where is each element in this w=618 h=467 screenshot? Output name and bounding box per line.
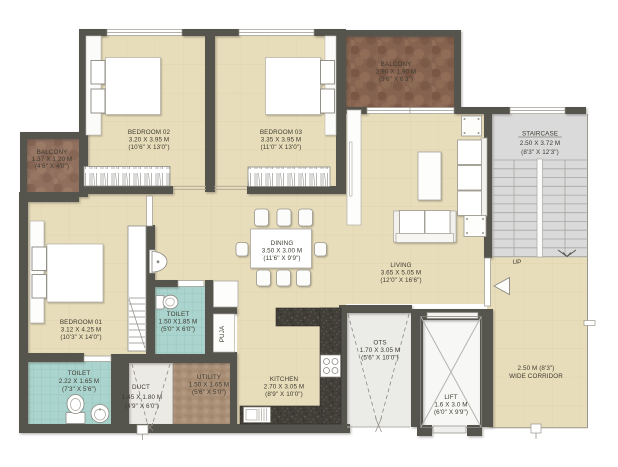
svg-text:(10'6" X 13'0"): (10'6" X 13'0"): [128, 144, 169, 151]
svg-text:2.50 X 3.72 M: 2.50 X 3.72 M: [520, 140, 561, 147]
svg-text:BALCONY: BALCONY: [37, 149, 68, 156]
svg-text:(6'0" X 9'9"): (6'0" X 9'9"): [434, 409, 468, 416]
svg-text:(11'6" X 9'9"): (11'6" X 9'9"): [263, 255, 300, 262]
svg-text:LIVING: LIVING: [390, 262, 411, 269]
svg-text:(11'0" X 13'0"): (11'0" X 13'0"): [261, 144, 302, 151]
svg-text:1.6 X 3.0 M: 1.6 X 3.0 M: [434, 402, 467, 409]
svg-text:1.45 X 1.80 M: 1.45 X 1.80 M: [122, 394, 163, 401]
svg-text:(5'6" X 5'0"): (5'6" X 5'0"): [192, 389, 226, 396]
svg-text:(4'6" X 4'0"): (4'6" X 4'0"): [35, 163, 69, 170]
svg-text:1.70 X 3.05 M: 1.70 X 3.05 M: [360, 347, 401, 354]
svg-text:TOILET: TOILET: [68, 370, 91, 377]
svg-text:1.50 X1.85 M: 1.50 X1.85 M: [159, 319, 198, 326]
svg-text:DUCT: DUCT: [132, 384, 150, 391]
svg-text:3.20 X 3.95 M: 3.20 X 3.95 M: [129, 137, 170, 144]
svg-text:LIFT: LIFT: [444, 394, 457, 401]
svg-text:3.35 X 3.95 M: 3.35 X 3.95 M: [261, 137, 302, 144]
svg-text:KITCHEN: KITCHEN: [270, 376, 299, 383]
svg-text:2.50 M (8'3"): 2.50 M (8'3"): [518, 365, 555, 372]
svg-text:OTS: OTS: [373, 340, 386, 347]
svg-text:3.50 X 3.00 M: 3.50 X 3.00 M: [262, 248, 303, 255]
svg-text:UP: UP: [513, 259, 522, 266]
svg-text:STAIRCASE: STAIRCASE: [522, 131, 558, 138]
svg-text:(10'3" X 14'0"): (10'3" X 14'0"): [60, 334, 101, 341]
svg-text:2.70 X 3.05 M: 2.70 X 3.05 M: [264, 384, 305, 391]
svg-text:UTILITY: UTILITY: [197, 374, 222, 381]
svg-text:BEDROOM 03: BEDROOM 03: [260, 129, 303, 136]
svg-text:TOILET: TOILET: [167, 311, 190, 318]
svg-text:WIDE CORRIDOR: WIDE CORRIDOR: [509, 373, 563, 380]
svg-text:(9'6" X 6'3"): (9'6" X 6'3"): [379, 76, 413, 83]
svg-text:2.90 X 1.90 M: 2.90 X 1.90 M: [376, 69, 417, 76]
svg-text:BEDROOM 02: BEDROOM 02: [128, 129, 171, 136]
svg-text:(4'9" X 6'0"): (4'9" X 6'0"): [125, 403, 159, 410]
svg-text:(8'9" X 10'0"): (8'9" X 10'0"): [265, 391, 303, 398]
svg-text:(8'3" X 12'3"): (8'3" X 12'3"): [521, 149, 559, 156]
svg-text:(5'0" X 6'0"): (5'0" X 6'0"): [161, 326, 195, 333]
svg-text:3.12 X 4.25 M: 3.12 X 4.25 M: [61, 327, 102, 334]
svg-text:2.22 X 1.65 M: 2.22 X 1.65 M: [59, 378, 100, 385]
svg-text:3.65 X 5.05 M: 3.65 X 5.05 M: [381, 270, 422, 277]
svg-text:1.50 X 1.65 M: 1.50 X 1.65 M: [189, 382, 230, 389]
svg-text:1.37 X 1.20 M: 1.37 X 1.20 M: [32, 156, 73, 163]
svg-text:BALCONY: BALCONY: [381, 61, 412, 68]
svg-text:(12'0" X 16'6"): (12'0" X 16'6"): [380, 277, 421, 284]
svg-text:PUJA: PUJA: [219, 325, 226, 342]
svg-text:DINING: DINING: [271, 240, 294, 247]
svg-text:(7'3" X 5'6"): (7'3" X 5'6"): [62, 386, 96, 393]
svg-text:BEDROOM 01: BEDROOM 01: [60, 319, 103, 326]
svg-text:(5'6" X 10'0"): (5'6" X 10'0"): [361, 355, 399, 362]
